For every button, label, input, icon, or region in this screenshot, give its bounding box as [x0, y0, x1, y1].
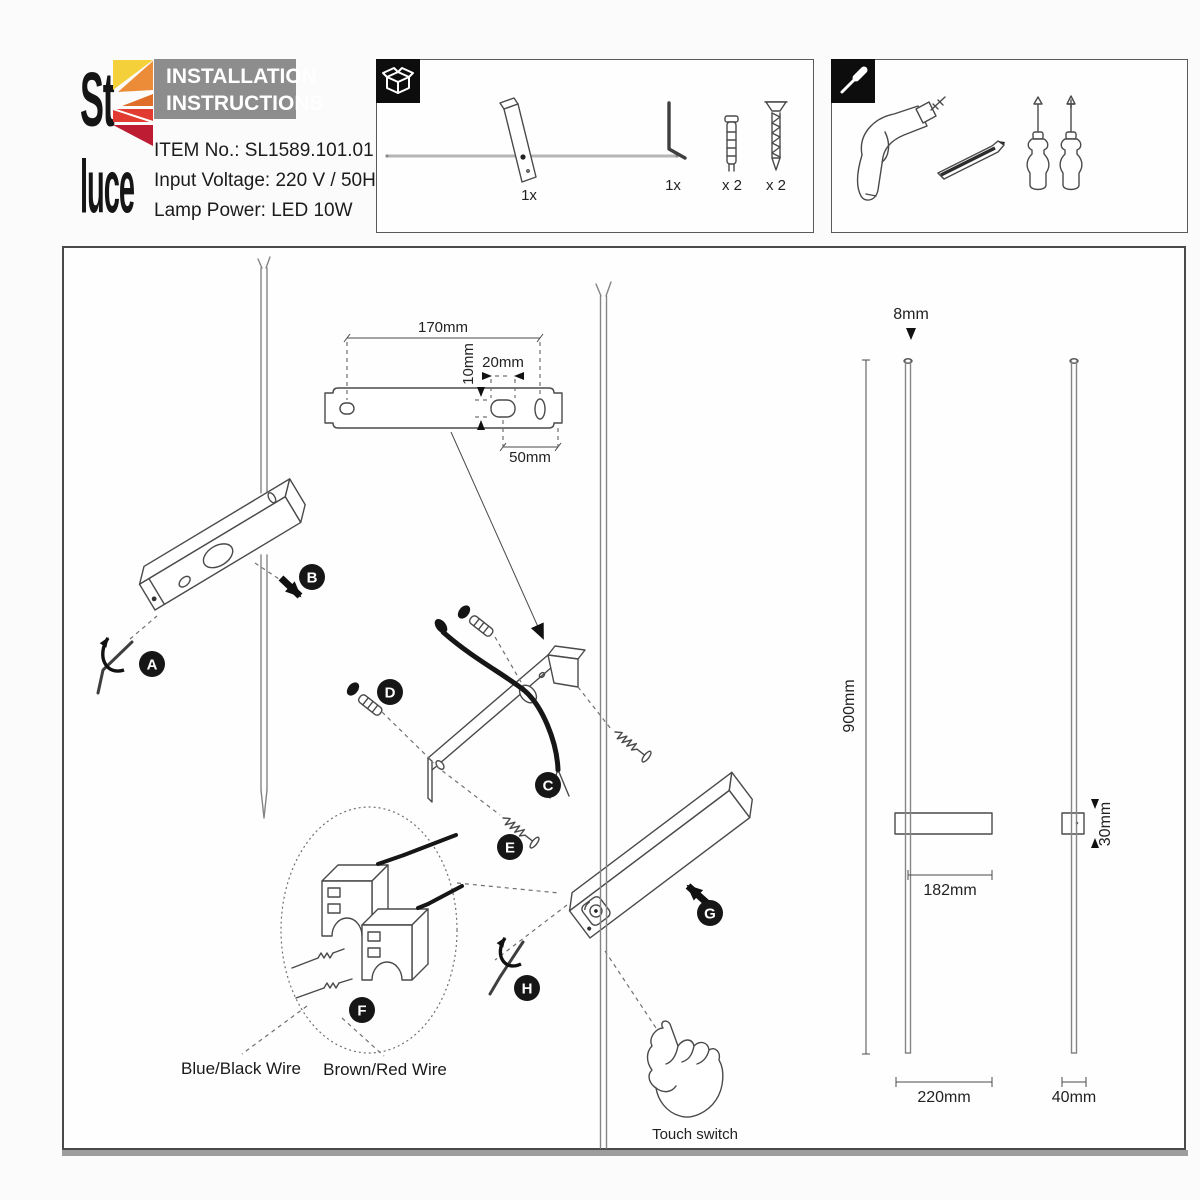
tools-box — [831, 59, 1188, 233]
dim-rod-diameter: 8mm — [893, 306, 929, 323]
dim-hole-width: 20mm — [482, 354, 524, 371]
bracket-hole-left — [340, 403, 354, 414]
wall-anchor-figure — [725, 116, 738, 171]
side-body — [1062, 813, 1084, 834]
hex-key-qty: 1x — [665, 177, 681, 194]
logo-word-st: St — [80, 62, 113, 139]
phillips-screwdriver-figure — [1060, 96, 1082, 190]
side-view: 30mm 40mm — [1052, 359, 1114, 1106]
lamp-figure — [385, 98, 678, 182]
touch-switch-label: Touch switch — [652, 1126, 738, 1143]
parts-box: 1x 1x x 2 x 2 — [376, 59, 814, 233]
hex-guide-h — [495, 905, 567, 960]
front-view: 8mm 900mm 182mm 220mm — [841, 306, 992, 1106]
front-body — [895, 813, 992, 834]
logo-word-luce: luce — [80, 150, 134, 225]
input-voltage: Input Voltage: 220 V / 50Hz — [154, 166, 385, 196]
hex-key-figure — [669, 103, 685, 158]
svg-text:E: E — [505, 840, 515, 857]
svg-text:F: F — [357, 1003, 366, 1020]
mounting-screw-right — [578, 687, 652, 763]
wall-anchor-top — [455, 603, 525, 689]
svg-text:B: B — [307, 570, 318, 587]
step-label-e: E — [497, 834, 523, 860]
lamp-qty: 1x — [521, 187, 537, 204]
step-label-h: H — [514, 975, 540, 1001]
package-icon — [376, 59, 420, 103]
wall-anchor-left — [344, 680, 500, 815]
item-info: ITEM No.: SL1589.101.01 Input Voltage: 2… — [154, 136, 385, 226]
lamp-power: Lamp Power: LED 10W — [154, 196, 385, 226]
anchor-qty: x 2 — [722, 177, 742, 194]
stripped-wire-2 — [296, 979, 352, 998]
screw-figure — [765, 102, 787, 170]
dim-bracket-length: 170mm — [418, 319, 468, 336]
dim-hole-offset: 50mm — [509, 449, 551, 466]
title-line-2: INSTRUCTIONS — [166, 90, 296, 117]
touch-hand — [648, 1021, 723, 1117]
bracket-hole-center — [491, 400, 515, 417]
svg-text:A: A — [147, 657, 158, 674]
step-label-a: A — [139, 651, 165, 677]
svg-text:D: D — [385, 685, 396, 702]
wire-label-blue-black: Blue/Black Wire — [181, 1059, 301, 1078]
step-label-f: F — [349, 997, 375, 1023]
dim-side-width: 40mm — [1052, 1089, 1096, 1106]
dim-hole-height: 10mm — [460, 343, 477, 385]
parts-figures: 1x 1x x 2 x 2 — [377, 60, 813, 232]
logo-color-mark — [113, 60, 155, 146]
screw-qty: x 2 — [766, 177, 786, 194]
dim-body-length: 220mm — [917, 1089, 970, 1106]
stripped-wire-1 — [292, 949, 344, 968]
svg-text:G: G — [704, 906, 716, 923]
step-label-g: G — [697, 900, 723, 926]
dim-body-offset: 182mm — [923, 882, 976, 899]
tools-figures — [832, 60, 1187, 232]
arrow-b — [281, 578, 300, 596]
rod-pointer — [906, 328, 916, 340]
step-label-b: B — [299, 564, 325, 590]
lamp-body-upper — [133, 479, 312, 610]
dim-fixture-height: 900mm — [841, 679, 858, 732]
svg-text:C: C — [543, 778, 554, 795]
dim-body-height: 30mm — [1097, 802, 1114, 846]
frame-shadow — [62, 1150, 1188, 1156]
item-number: ITEM No.: SL1589.101.01 — [154, 136, 385, 166]
wire-label-brown-red: Brown/Red Wire — [323, 1060, 447, 1079]
step-label-d: D — [377, 679, 403, 705]
bracket-hole-right — [535, 399, 545, 419]
bracket-dimension-drawing: 170mm 20mm 10mm 50mm — [325, 319, 562, 638]
drill-figure — [858, 97, 945, 200]
arrow-g — [688, 886, 707, 903]
lamp-body-lower — [562, 772, 760, 938]
svg-text:H: H — [522, 981, 533, 998]
step-label-c: C — [535, 772, 561, 798]
main-diagram: 170mm 20mm 10mm 50mm — [62, 246, 1186, 1150]
lamp-rod-center — [596, 282, 611, 1148]
pencil-figure — [938, 141, 1005, 179]
wire-connector-2 — [362, 904, 428, 980]
flat-screwdriver-figure — [1027, 97, 1049, 190]
title-line-1: INSTALLATION — [166, 63, 296, 90]
touch-guide — [605, 951, 660, 1034]
screwdriver-icon — [831, 59, 875, 103]
installation-title: INSTALLATION INSTRUCTIONS — [154, 59, 296, 119]
